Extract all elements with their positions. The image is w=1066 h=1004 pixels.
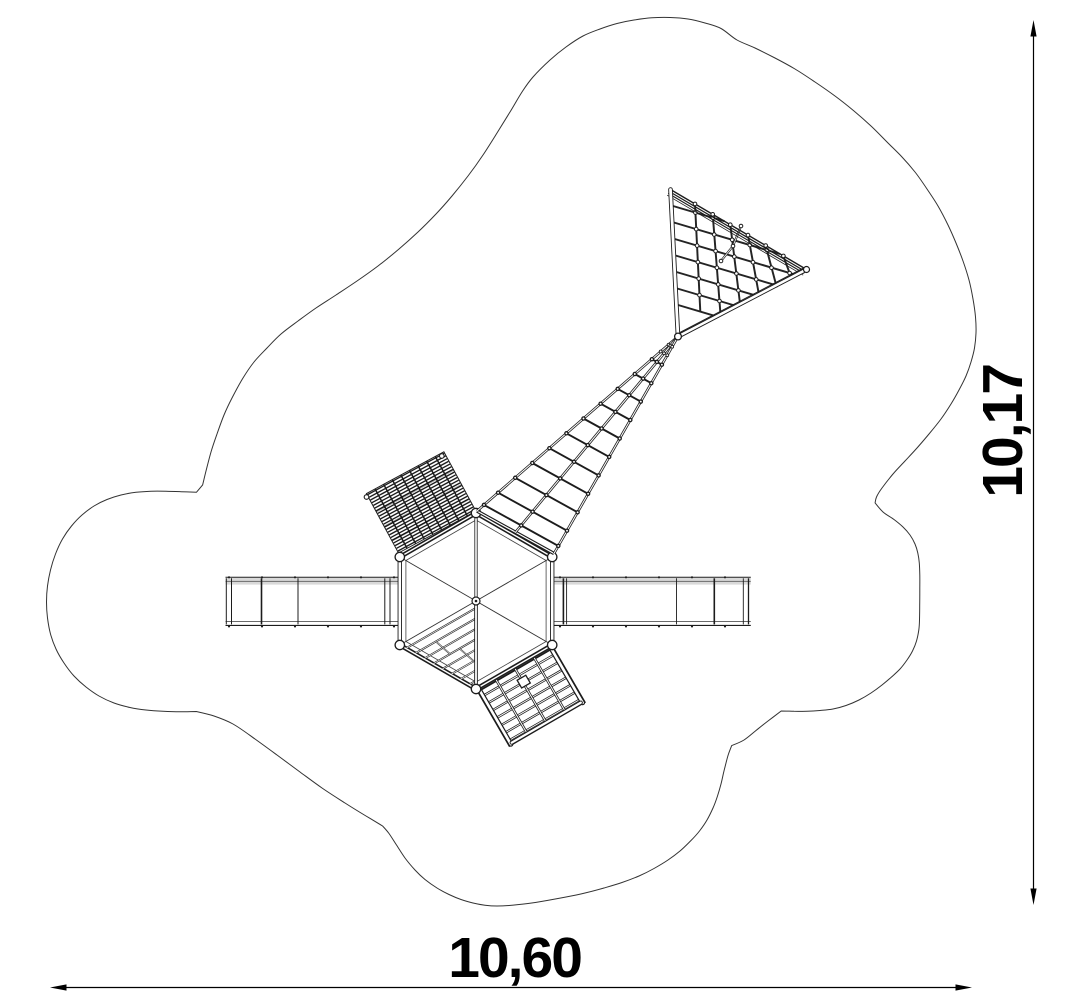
- svg-text:10,60: 10,60: [448, 926, 581, 990]
- svg-text:10,17: 10,17: [971, 365, 1035, 498]
